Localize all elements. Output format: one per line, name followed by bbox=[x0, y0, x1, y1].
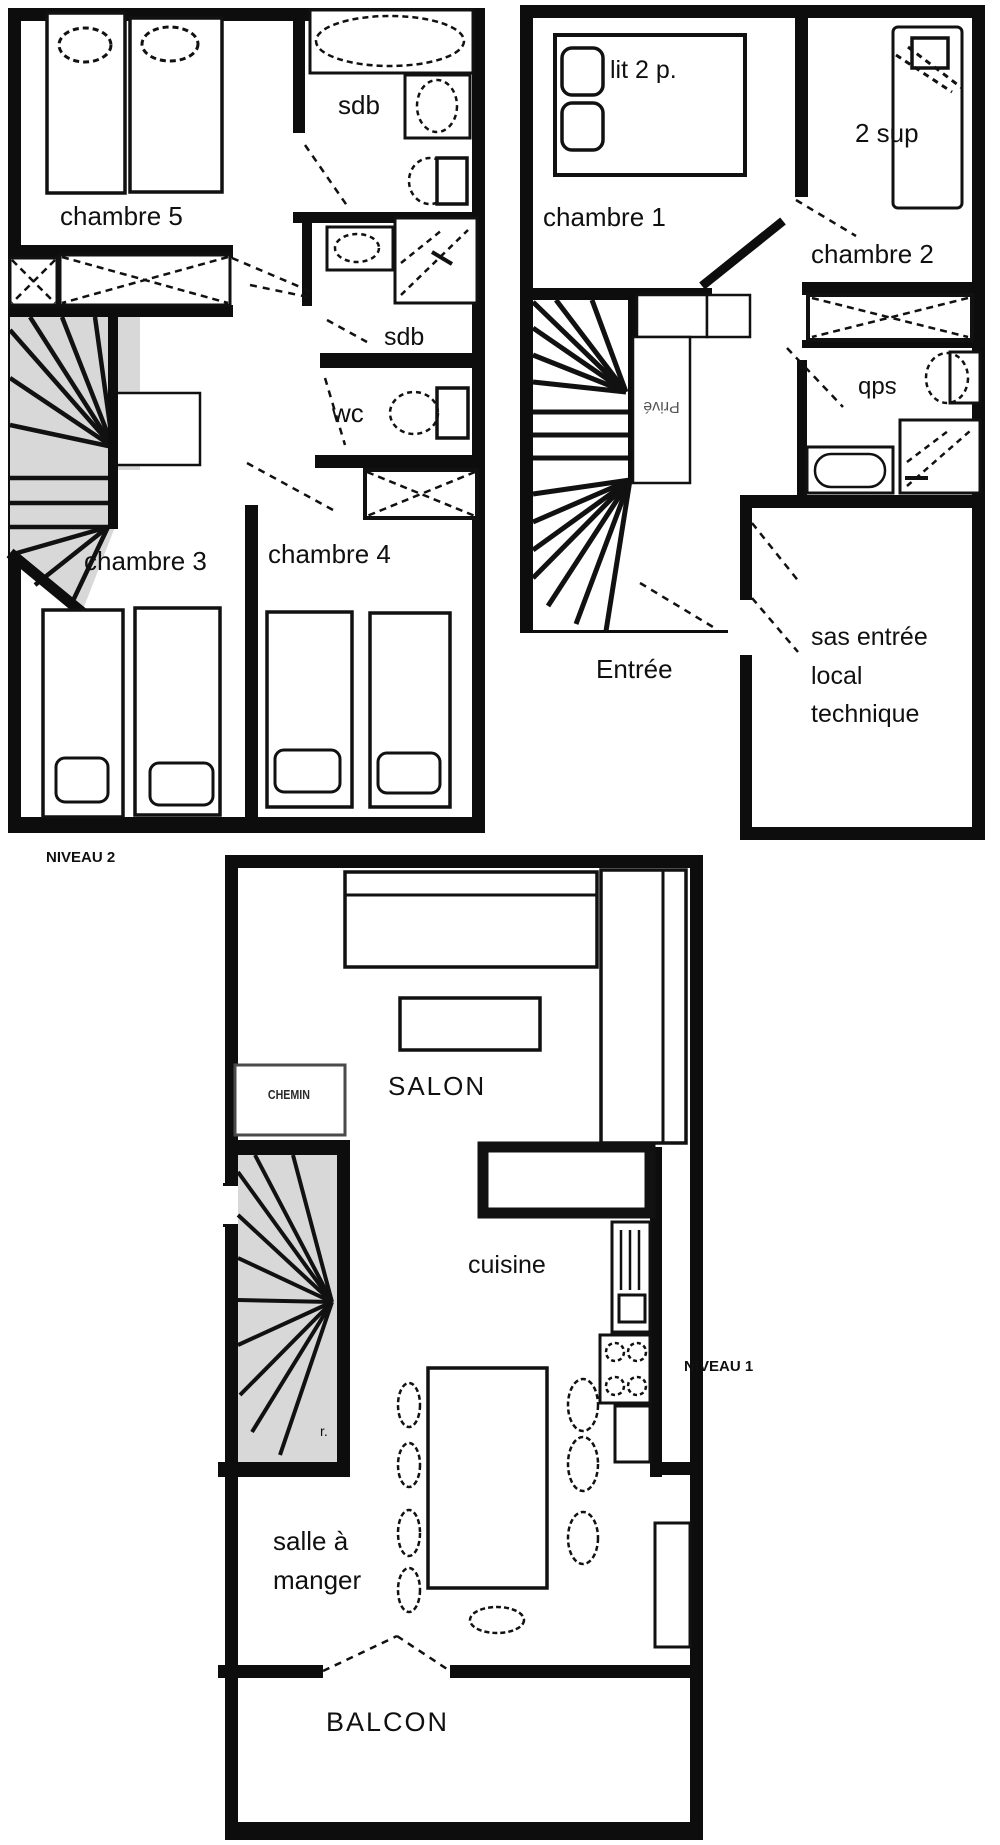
cupboard bbox=[655, 1523, 690, 1647]
spiral-stairs-niveau1 bbox=[238, 1155, 337, 1462]
bathtub-icon bbox=[310, 10, 473, 73]
washbasin-icon bbox=[327, 227, 393, 270]
level-label-niveau2: NIVEAU 2 bbox=[46, 850, 115, 865]
salon-furniture bbox=[345, 870, 686, 1143]
room-label-sas-line2: local bbox=[811, 664, 862, 689]
room-label-sas-line3: technique bbox=[811, 702, 919, 727]
bed-label-2sup: 2 sup bbox=[855, 120, 919, 146]
fireplace-label: CHEMIN bbox=[252, 1088, 326, 1101]
coffee-table bbox=[400, 998, 540, 1050]
kitchen-cabinet bbox=[615, 1406, 650, 1462]
floorplan: chambre 5 sdb sdb wc chambre 3 chambre 4… bbox=[0, 0, 1000, 1845]
room-label-wc: wc bbox=[332, 400, 364, 426]
room-label-salle-line1: salle à bbox=[273, 1528, 348, 1554]
room-label-balcon: BALCON bbox=[326, 1709, 449, 1736]
room-label-sdb-rotated: sdb bbox=[858, 376, 897, 400]
wall-unit bbox=[601, 870, 686, 1143]
room-label-sas-line1: sas entrée bbox=[811, 625, 928, 650]
sink-icon bbox=[619, 1295, 645, 1322]
room-label-chambre5: chambre 5 bbox=[60, 203, 183, 229]
room-label-sdb-mid: sdb bbox=[384, 325, 424, 350]
closet-label-prive: Privé bbox=[633, 398, 690, 414]
bathroom-top-fixtures bbox=[310, 10, 473, 204]
kitchen-counter bbox=[483, 1147, 650, 1213]
room-label-salle-line2: manger bbox=[273, 1567, 361, 1593]
room-label-sdb-top: sdb bbox=[338, 92, 380, 118]
dining-table bbox=[428, 1368, 547, 1588]
entry-stair-landing bbox=[633, 295, 750, 483]
room-label-chambre3: chambre 3 bbox=[84, 548, 207, 574]
toilet-icon bbox=[405, 75, 470, 138]
room-label-chambre2: chambre 2 bbox=[811, 241, 934, 267]
toilet-icon bbox=[437, 388, 468, 438]
floorplan-linework bbox=[0, 0, 1000, 1845]
beds-chambre5 bbox=[47, 13, 222, 193]
stair-note-label: r. bbox=[320, 1424, 328, 1438]
room-label-chambre1: chambre 1 bbox=[543, 204, 666, 230]
room-label-entree: Entrée bbox=[596, 656, 673, 682]
sofa bbox=[345, 872, 597, 967]
level-label-niveau1: NIVEAU 1 bbox=[684, 1359, 753, 1374]
bed-label-lit2p: lit 2 p. bbox=[610, 58, 677, 83]
left-wall-window bbox=[223, 1183, 240, 1227]
room-label-cuisine: cuisine bbox=[468, 1253, 546, 1278]
balcony-door-swing bbox=[323, 1636, 450, 1671]
entry-stairs bbox=[533, 300, 630, 631]
entry-bathroom-fixtures bbox=[807, 352, 980, 493]
entry-wardrobe bbox=[808, 295, 972, 340]
washbasin-icon bbox=[950, 352, 980, 403]
room-label-salon: SALON bbox=[388, 1073, 486, 1099]
room-label-chambre4: chambre 4 bbox=[268, 541, 391, 567]
